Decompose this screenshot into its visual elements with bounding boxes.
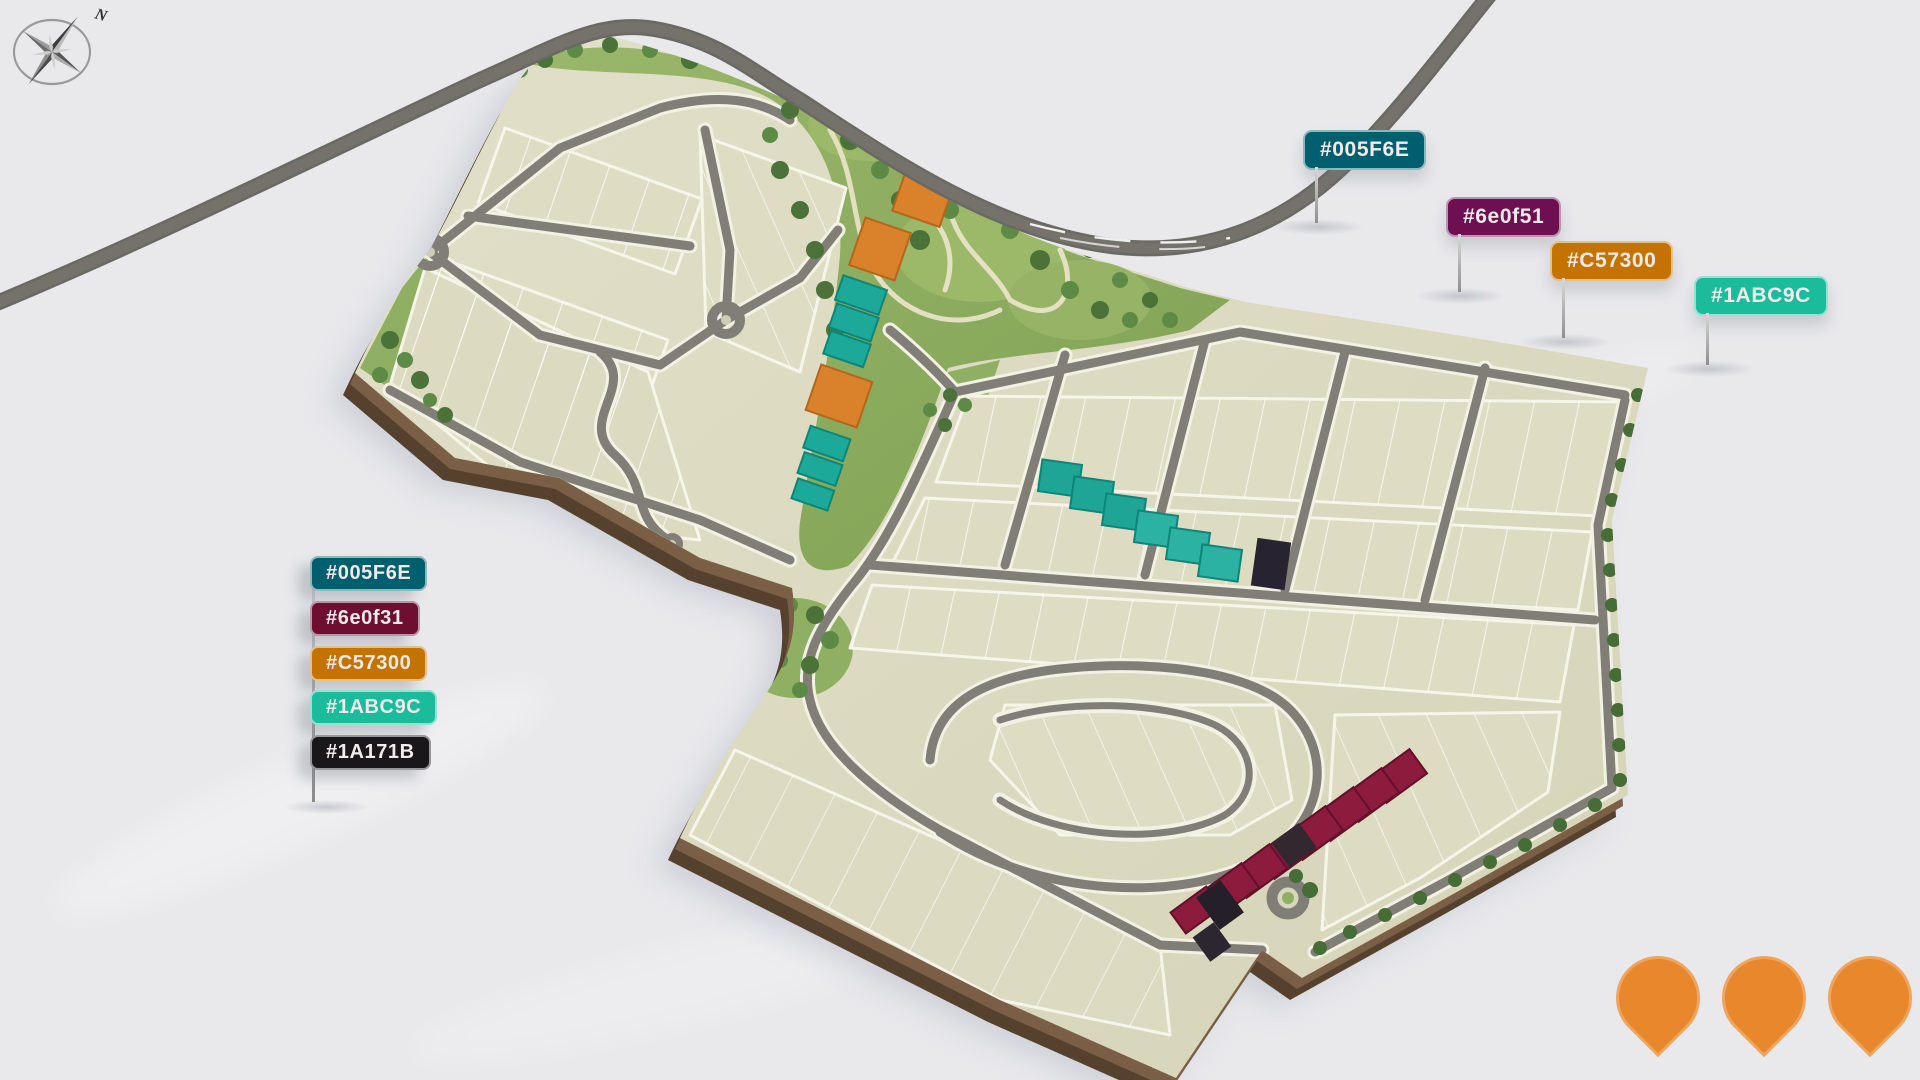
masterplan-map — [0, 0, 1920, 1080]
flag-post-shadow — [1273, 219, 1363, 235]
legend-item-1A171B[interactable]: #1A171B — [310, 735, 431, 770]
map-flag-1ABC9C[interactable]: #1ABC9C — [1694, 276, 1828, 316]
compass-north-label: N — [92, 5, 111, 25]
flag-label: #C57300 — [1550, 241, 1673, 281]
location-pin-2[interactable] — [1722, 950, 1806, 1068]
pin-icon — [1811, 939, 1920, 1058]
flag-label: #005F6E — [1303, 130, 1426, 170]
legend-post-shadow — [284, 800, 368, 814]
legend-item-C57300[interactable]: #C57300 — [310, 646, 427, 681]
pin-icon — [1599, 939, 1718, 1058]
flag-post-shadow — [1664, 361, 1754, 377]
location-pin-3[interactable] — [1828, 950, 1912, 1068]
park-lawn — [1008, 260, 1152, 340]
legend-item-6e0f31[interactable]: #6e0f31 — [310, 601, 420, 636]
flag-post — [1315, 167, 1318, 223]
flag-label: #1ABC9C — [1694, 276, 1828, 316]
map-flag-6e0f51[interactable]: #6e0f51 — [1446, 197, 1561, 237]
pin-icon — [1705, 939, 1824, 1058]
flag-label: #6e0f51 — [1446, 197, 1561, 237]
legend-item-1ABC9C[interactable]: #1ABC9C — [310, 690, 437, 725]
map-flag-C57300[interactable]: #C57300 — [1550, 241, 1673, 281]
compass-rose: N — [0, 0, 120, 104]
map-flag-005F6E[interactable]: #005F6E — [1303, 130, 1426, 170]
location-pin-1[interactable] — [1616, 950, 1700, 1068]
map-pins — [1616, 950, 1912, 1068]
flag-post — [1562, 278, 1565, 338]
legend-item-005F6E[interactable]: #005F6E — [310, 556, 427, 591]
flag-post-shadow — [1520, 334, 1610, 350]
flag-post — [1706, 313, 1709, 365]
flag-post — [1458, 234, 1461, 292]
flag-post-shadow — [1416, 288, 1506, 304]
masterplan-scene: N #005F6E#6e0f31#C57300#1ABC9C#1A171B #0… — [0, 0, 1920, 1080]
